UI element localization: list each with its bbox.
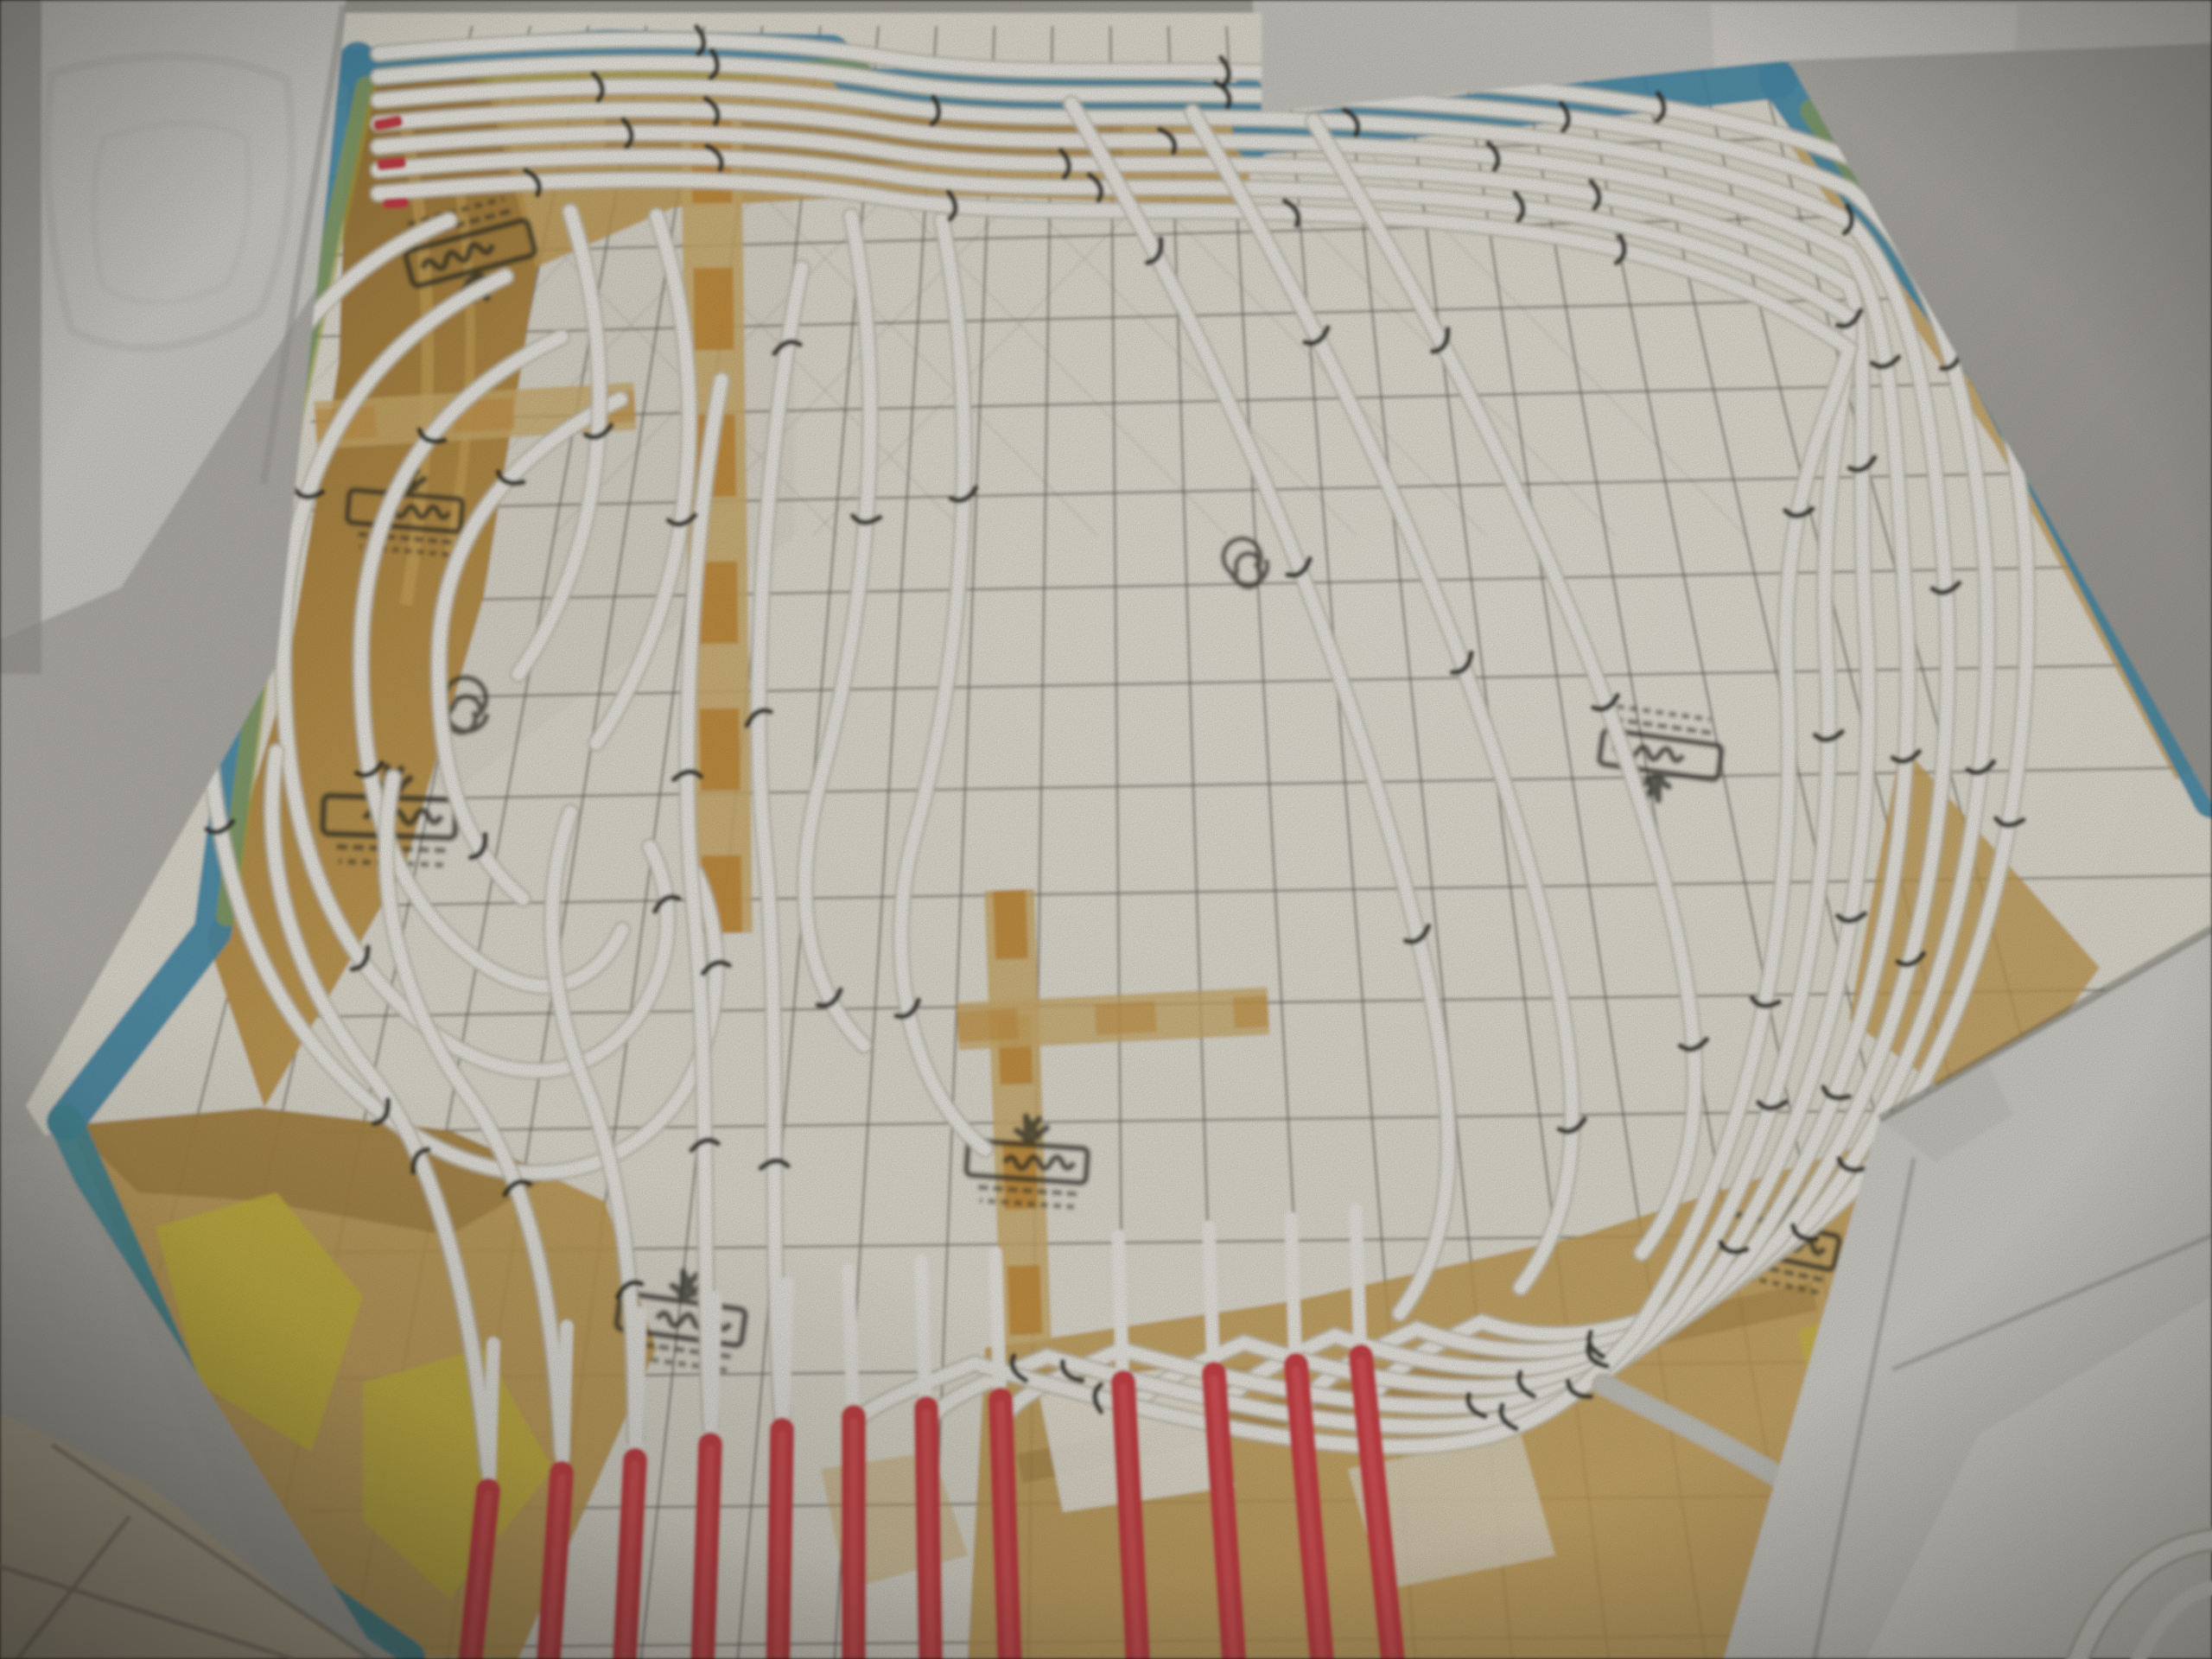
- film-grain: [0, 0, 2212, 1659]
- photo-underfloor-heating: [0, 0, 2212, 1659]
- scene-canvas: [0, 0, 2212, 1659]
